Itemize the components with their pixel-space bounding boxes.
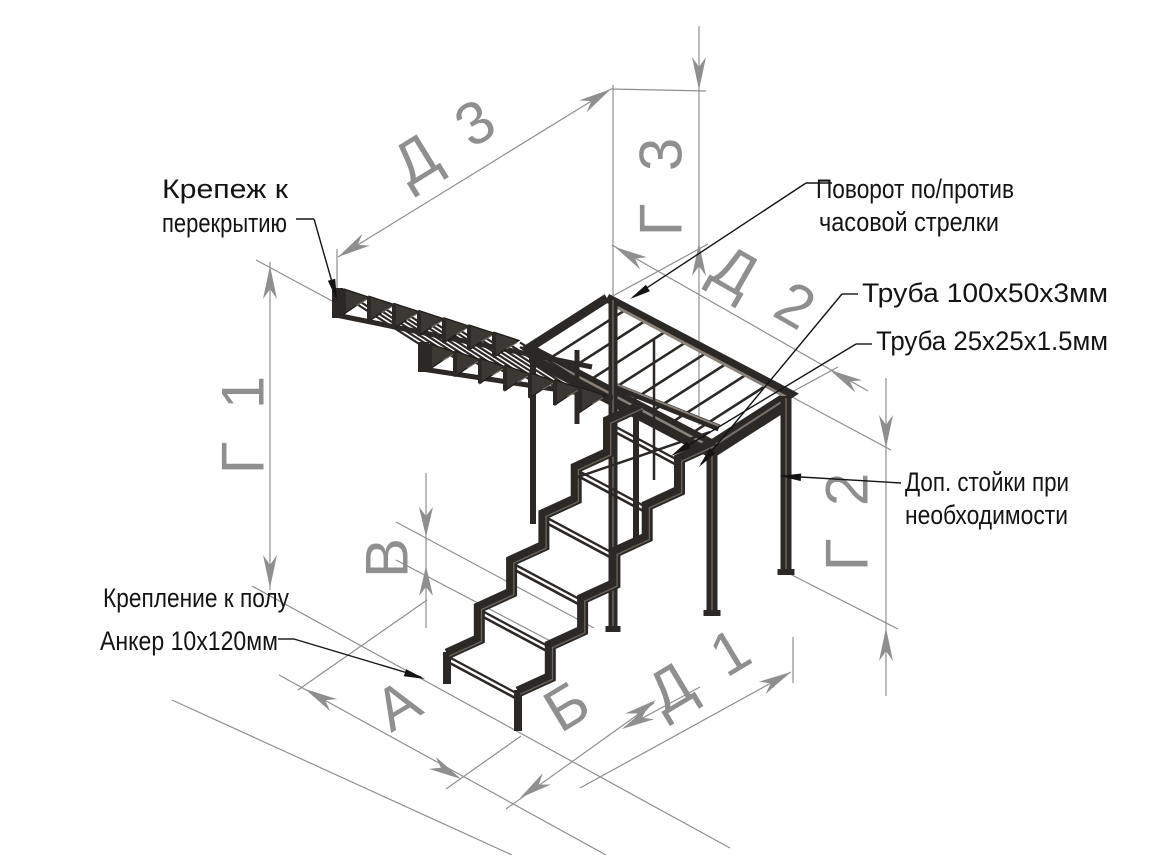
svg-text:Поворот по/против: Поворот по/против (816, 174, 1014, 204)
svg-text:Доп. стойки при: Доп. стойки при (905, 467, 1069, 497)
svg-text:Г 3: Г 3 (628, 130, 695, 237)
svg-text:Анкер 10x120мм: Анкер 10x120мм (100, 626, 278, 656)
svg-text:часовой стрелки: часовой стрелки (819, 207, 999, 237)
svg-text:Крепеж к: Крепеж к (162, 174, 288, 204)
svg-text:перекрытию: перекрытию (162, 208, 287, 238)
svg-text:Труба 100x50x3мм: Труба 100x50x3мм (862, 278, 1108, 308)
svg-text:Труба 25x25x1.5мм: Труба 25x25x1.5мм (876, 326, 1108, 356)
svg-text:Г 1: Г 1 (210, 368, 277, 475)
svg-text:необходимости: необходимости (905, 500, 1068, 530)
svg-text:Крепление к полу: Крепление к полу (103, 583, 289, 613)
svg-text:В: В (354, 530, 421, 578)
